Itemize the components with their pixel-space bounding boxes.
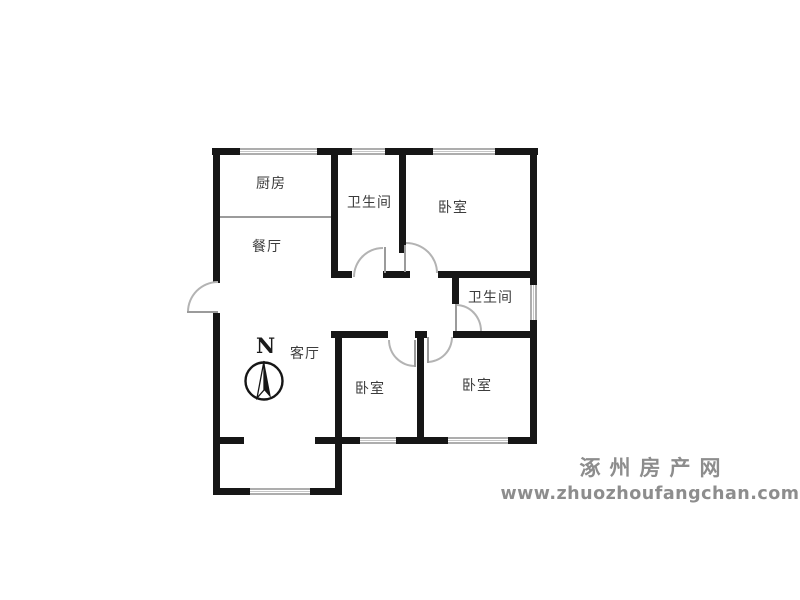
wall-left-lower <box>213 313 220 495</box>
room-label-kitchen: 厨房 <box>256 173 286 193</box>
compass-north-label: N <box>256 333 275 358</box>
compass-icon <box>243 359 287 403</box>
room-label-dining: 餐厅 <box>252 236 282 256</box>
wall-bedroom2-bedroom3-divider <box>417 331 424 444</box>
room-label-living: 客厅 <box>290 343 320 363</box>
bathroom-top-window <box>352 148 385 155</box>
kitchen-dining-separator-line <box>220 216 331 218</box>
wall-left-upper <box>213 148 220 283</box>
bedroom1-door-leaf <box>404 245 406 272</box>
watermark-site-name: 涿州房产网 <box>500 452 800 482</box>
wall-kitchen-bath-divider <box>331 148 338 278</box>
entrance-door-swing-arc <box>187 281 218 312</box>
bedroom3-door-swing-arc <box>427 337 453 363</box>
bedroom1-door-swing-arc <box>406 242 438 273</box>
bathroom-right-door-leaf <box>455 304 457 331</box>
bathroom-right-door-swing-arc <box>456 304 482 331</box>
bedroom2-window <box>360 437 396 444</box>
bedroom2-door-swing-arc <box>388 340 415 367</box>
kitchen-window <box>240 148 317 155</box>
bathroom-top-door-leaf <box>384 247 386 273</box>
room-label-bedroom-top-right: 卧室 <box>438 197 468 217</box>
bedroom2-door-leaf <box>414 340 416 367</box>
room-label-bedroom-bottom-right: 卧室 <box>462 375 492 395</box>
wall-living-bedroom-divider <box>335 331 342 495</box>
wall-bath-top-bottom-left-stub <box>331 271 352 278</box>
wall-bath-bedroom-divider <box>399 148 406 253</box>
wall-bath-right-bottom <box>453 331 537 338</box>
entrance-door-leaf <box>187 311 218 313</box>
room-label-bedroom-bottom-middle: 卧室 <box>355 378 385 398</box>
watermark: 涿州房产网 www.zhuozhoufangchan.com <box>500 452 800 504</box>
balcony-window <box>250 488 310 495</box>
bedroom3-door-leaf <box>427 337 429 363</box>
bathroom-top-door-swing-arc <box>353 247 383 277</box>
watermark-site-url: www.zhuozhoufangchan.com <box>500 484 800 504</box>
bedroom3-window <box>448 437 508 444</box>
wall-living-bottom-stub <box>213 437 244 444</box>
bathroom-right-window <box>530 285 537 320</box>
bedroom1-window <box>433 148 495 155</box>
room-label-bathroom-top: 卫生间 <box>347 192 392 212</box>
wall-bath-right-left <box>452 271 459 304</box>
room-label-bathroom-right: 卫生间 <box>468 287 513 307</box>
floor-plan: 厨房 卫生间 卧室 餐厅 卫生间 客厅 卧室 卧室 N 涿州房产网 www.zh… <box>0 0 800 600</box>
